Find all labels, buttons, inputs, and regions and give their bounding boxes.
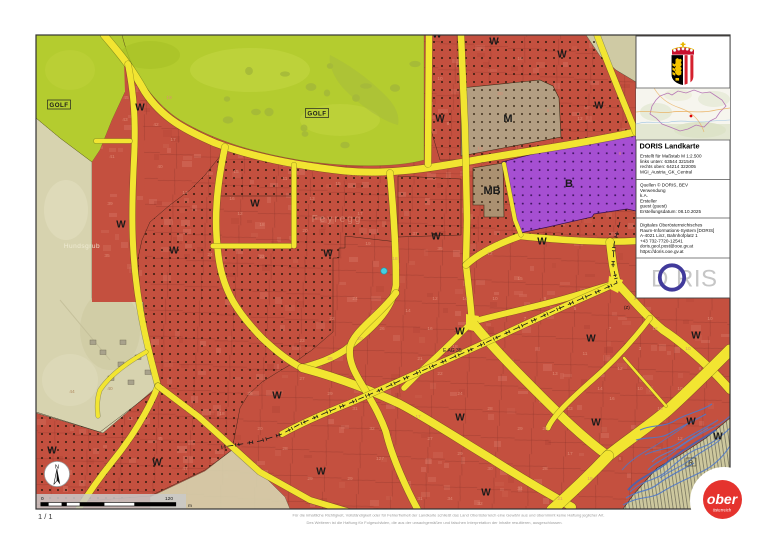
svg-text:12: 12 <box>617 366 623 372</box>
svg-text:22: 22 <box>437 371 443 377</box>
svg-text:40: 40 <box>157 164 163 170</box>
svg-text:Für die inhaltliche Richtigkei: Für die inhaltliche Richtigkeit, Vollstä… <box>293 513 605 518</box>
svg-text:W: W <box>250 199 260 210</box>
svg-text:6: 6 <box>547 108 550 114</box>
svg-text:8: 8 <box>447 121 450 127</box>
svg-text:18: 18 <box>219 411 225 417</box>
svg-text:Digitales Oberösterreichisches: Digitales Oberösterreichisches <box>640 223 703 228</box>
svg-text:42: 42 <box>153 122 159 128</box>
svg-text:W: W <box>481 488 491 499</box>
svg-text:25: 25 <box>542 426 548 432</box>
svg-text:W: W <box>586 334 596 345</box>
svg-text:10: 10 <box>477 146 483 152</box>
svg-text:29: 29 <box>307 476 313 482</box>
svg-text:W: W <box>316 467 326 478</box>
svg-text:(Z): (Z) <box>624 305 630 310</box>
svg-text:12: 12 <box>652 326 658 332</box>
svg-text:10: 10 <box>437 76 443 82</box>
svg-text:12: 12 <box>432 296 438 302</box>
svg-text:DORIS Landkarte: DORIS Landkarte <box>640 142 700 151</box>
svg-text:MB: MB <box>483 185 500 197</box>
svg-text:7: 7 <box>524 316 527 322</box>
svg-text:Erstellungsdatum: 08.10.2025: Erstellungsdatum: 08.10.2025 <box>640 209 701 214</box>
svg-text:14: 14 <box>405 308 411 314</box>
svg-text:15: 15 <box>335 181 341 187</box>
svg-text:17: 17 <box>357 211 363 217</box>
svg-text:34: 34 <box>517 486 523 492</box>
svg-text:rechts oben: 64214 322005: rechts oben: 64214 322005 <box>640 164 696 169</box>
svg-text:W: W <box>152 458 162 469</box>
svg-text:doris.geol.post@ooe.gv.at: doris.geol.post@ooe.gv.at <box>640 244 694 249</box>
svg-text:10: 10 <box>677 386 683 392</box>
svg-text:Hundsgrub: Hundsgrub <box>64 243 100 250</box>
svg-text:19: 19 <box>587 476 593 482</box>
svg-text:34: 34 <box>447 496 453 502</box>
svg-text:Feyregg: Feyregg <box>312 214 363 225</box>
svg-text:20: 20 <box>357 336 363 342</box>
svg-text:41: 41 <box>109 154 115 160</box>
svg-text:14: 14 <box>462 296 468 302</box>
svg-text:15: 15 <box>517 276 523 282</box>
svg-text:37: 37 <box>412 231 418 237</box>
svg-text:12: 12 <box>577 116 583 122</box>
svg-text:19: 19 <box>166 95 172 101</box>
svg-text:W: W <box>47 446 57 457</box>
svg-text:W: W <box>455 327 465 338</box>
svg-text:24: 24 <box>457 391 463 397</box>
svg-text:Raum-Informations-System [DORI: Raum-Informations-System [DORIS] <box>640 228 714 233</box>
svg-text:https://doris.ooe.gv.at: https://doris.ooe.gv.at <box>640 249 684 254</box>
svg-text:18: 18 <box>392 256 398 262</box>
svg-text:W: W <box>435 114 445 125</box>
svg-text:W: W <box>594 101 604 112</box>
svg-text:W: W <box>455 413 465 424</box>
svg-text:13: 13 <box>552 371 558 377</box>
svg-text:44: 44 <box>69 389 75 395</box>
svg-text:3: 3 <box>639 346 642 352</box>
svg-text:26: 26 <box>247 391 253 397</box>
svg-text:35: 35 <box>104 253 110 259</box>
svg-text:17: 17 <box>567 451 573 457</box>
svg-text:43: 43 <box>127 416 133 422</box>
svg-text:17: 17 <box>415 414 421 420</box>
svg-text:W: W <box>489 37 499 48</box>
svg-text:23: 23 <box>299 338 305 344</box>
svg-text:ober: ober <box>707 491 739 507</box>
svg-text:20: 20 <box>497 91 503 97</box>
svg-text:20: 20 <box>302 228 308 234</box>
svg-text:Quellen © DORIS, BEV: Quellen © DORIS, BEV <box>640 182 689 188</box>
svg-text:16: 16 <box>229 196 235 202</box>
svg-text:32: 32 <box>477 501 483 507</box>
svg-text:W: W <box>691 331 701 342</box>
svg-text:15: 15 <box>233 169 239 175</box>
svg-text:35: 35 <box>437 246 443 252</box>
svg-text:29: 29 <box>457 451 463 457</box>
svg-text:W: W <box>431 232 441 243</box>
svg-text:32: 32 <box>369 426 375 432</box>
svg-text:28: 28 <box>487 406 493 412</box>
svg-text:43: 43 <box>122 117 128 123</box>
svg-text:31: 31 <box>352 406 358 412</box>
svg-text:27: 27 <box>299 376 305 382</box>
svg-text:0: 0 <box>41 496 44 502</box>
svg-text:k.A.: k.A. <box>640 193 648 198</box>
svg-text:18: 18 <box>259 222 265 228</box>
svg-text:1 / 1: 1 / 1 <box>38 512 53 521</box>
svg-text:22: 22 <box>329 316 335 322</box>
svg-text:9: 9 <box>544 296 547 302</box>
svg-text:W: W <box>116 220 126 231</box>
svg-text:16: 16 <box>609 396 615 402</box>
svg-text:Des Weiteren ist die Haftung f: Des Weiteren ist die Haftung für Folgesc… <box>306 520 562 525</box>
svg-text:26: 26 <box>379 326 385 332</box>
svg-text:guest (guest): guest (guest) <box>640 204 667 209</box>
svg-text:5: 5 <box>574 306 577 312</box>
svg-text:120: 120 <box>165 496 173 502</box>
svg-text:45: 45 <box>157 436 163 442</box>
svg-text:28: 28 <box>542 466 548 472</box>
svg-text:19: 19 <box>365 241 371 247</box>
svg-text:W: W <box>323 249 333 260</box>
svg-text:21: 21 <box>417 356 423 362</box>
svg-text:13: 13 <box>309 196 315 202</box>
svg-text:10: 10 <box>707 316 713 322</box>
svg-text:GOLF: GOLF <box>49 102 68 109</box>
svg-text:29: 29 <box>347 476 353 482</box>
svg-text:Verwendung: Verwendung <box>640 188 666 193</box>
svg-text:W: W <box>591 418 601 429</box>
svg-text:127: 127 <box>376 456 384 462</box>
svg-text:16: 16 <box>517 56 523 62</box>
svg-text:23: 23 <box>567 406 573 412</box>
svg-text:12: 12 <box>487 251 493 257</box>
svg-text:W: W <box>686 417 696 428</box>
svg-text:Ersteller: Ersteller <box>640 198 657 203</box>
svg-text:20: 20 <box>257 426 263 432</box>
svg-text:m: m <box>188 504 192 509</box>
svg-text:24: 24 <box>207 252 213 258</box>
svg-text:17: 17 <box>170 137 176 143</box>
svg-text:A-4021 Linz, Bahnhofplatz 1: A-4021 Linz, Bahnhofplatz 1 <box>640 233 698 238</box>
svg-text:22: 22 <box>259 254 265 260</box>
svg-text:GOLF: GOLF <box>307 111 326 118</box>
svg-text:W: W <box>557 50 567 61</box>
svg-text:27: 27 <box>427 436 433 442</box>
svg-text:MGI_Austria_GK_Central: MGI_Austria_GK_Central <box>640 169 692 174</box>
svg-text:10: 10 <box>685 346 691 352</box>
svg-text:18: 18 <box>657 406 663 412</box>
svg-text:6: 6 <box>619 456 622 462</box>
svg-text:12: 12 <box>677 436 683 442</box>
svg-text:21: 21 <box>557 496 563 502</box>
svg-text:8: 8 <box>699 366 702 372</box>
svg-text:12: 12 <box>237 211 243 217</box>
svg-text:W: W <box>272 391 282 402</box>
svg-text:links unten: 63544 321549: links unten: 63544 321549 <box>640 159 694 164</box>
svg-text:18: 18 <box>452 344 458 350</box>
svg-text:29: 29 <box>517 426 523 432</box>
svg-text:39: 39 <box>107 201 113 207</box>
svg-text:Erstellt für Maßstab M 1:2.500: Erstellt für Maßstab M 1:2.500 <box>640 154 702 159</box>
svg-text:28: 28 <box>282 446 288 452</box>
svg-text:13: 13 <box>182 190 188 196</box>
svg-text:16: 16 <box>427 326 433 332</box>
svg-text:11: 11 <box>583 351 588 357</box>
svg-text:österreich: österreich <box>713 508 732 513</box>
svg-text:B: B <box>565 178 573 190</box>
svg-text:47: 47 <box>182 466 188 472</box>
svg-text:W: W <box>537 237 547 248</box>
svg-text:W: W <box>713 432 723 443</box>
svg-text:10: 10 <box>637 386 643 392</box>
svg-text:24: 24 <box>352 296 358 302</box>
svg-text:11: 11 <box>283 176 288 182</box>
svg-text:+43 732-7720-12541: +43 732-7720-12541 <box>640 238 683 243</box>
svg-text:45: 45 <box>123 95 129 101</box>
svg-text:W: W <box>135 103 145 114</box>
svg-text:31: 31 <box>417 496 423 502</box>
svg-text:R: R <box>689 461 693 467</box>
svg-text:25: 25 <box>327 356 333 362</box>
svg-text:40: 40 <box>107 386 113 392</box>
svg-text:30: 30 <box>487 466 493 472</box>
svg-text:W: W <box>169 246 179 257</box>
svg-text:10: 10 <box>492 296 498 302</box>
svg-text:7: 7 <box>609 326 612 332</box>
svg-text:14: 14 <box>597 386 603 392</box>
svg-text:8: 8 <box>619 151 622 157</box>
svg-text:M: M <box>503 113 512 125</box>
svg-text:29: 29 <box>327 391 333 397</box>
